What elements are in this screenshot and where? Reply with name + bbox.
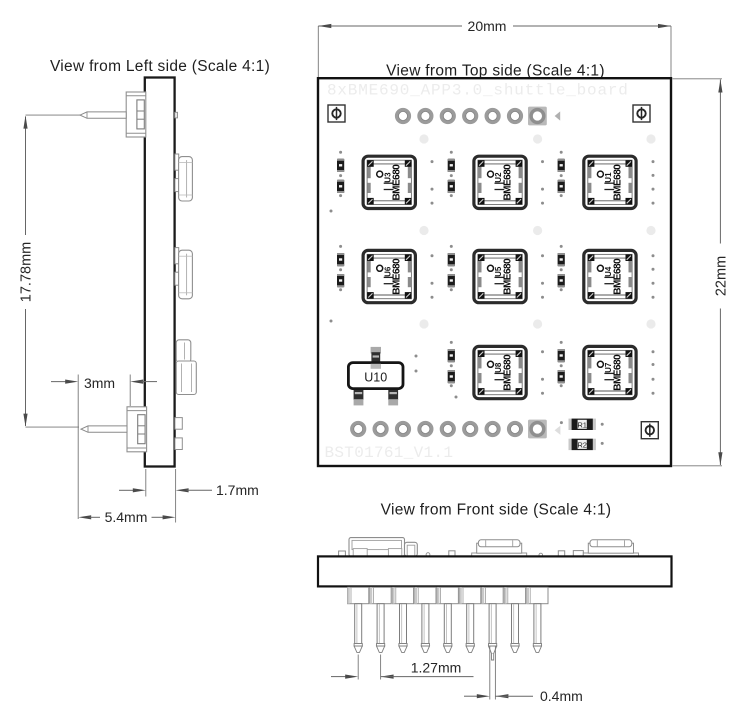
svg-text:1.27mm: 1.27mm — [411, 659, 462, 675]
svg-text:8xBME690_APP3.0_shuttle_board: 8xBME690_APP3.0_shuttle_board — [327, 82, 629, 100]
svg-text:20mm: 20mm — [468, 18, 507, 34]
svg-text:U6: U6 — [383, 266, 392, 277]
svg-text:17.78mm: 17.78mm — [19, 242, 35, 302]
svg-text:BST01761_V1.1: BST01761_V1.1 — [325, 444, 454, 462]
svg-text:U1: U1 — [604, 172, 613, 183]
svg-text:U5: U5 — [494, 266, 503, 277]
svg-text:U10: U10 — [364, 371, 387, 385]
svg-text:3mm: 3mm — [84, 375, 115, 391]
svg-text:U3: U3 — [383, 172, 392, 183]
svg-text:U4: U4 — [604, 266, 613, 277]
svg-text:0.4mm: 0.4mm — [540, 688, 583, 704]
svg-text:R2: R2 — [577, 441, 587, 450]
svg-text:U7: U7 — [604, 362, 613, 373]
svg-text:22mm: 22mm — [713, 256, 729, 296]
svg-text:5.4mm: 5.4mm — [105, 509, 148, 525]
svg-text:View from Left side (Scale 4:1: View from Left side (Scale 4:1) — [50, 58, 270, 75]
svg-text:1.7mm: 1.7mm — [216, 482, 259, 498]
svg-text:R1: R1 — [577, 421, 587, 430]
svg-text:View from Top side (Scale 4:1): View from Top side (Scale 4:1) — [386, 63, 605, 80]
svg-text:U8: U8 — [494, 362, 503, 373]
svg-text:View from Front side (Scale 4:: View from Front side (Scale 4:1) — [381, 502, 612, 519]
svg-text:U2: U2 — [494, 172, 503, 183]
